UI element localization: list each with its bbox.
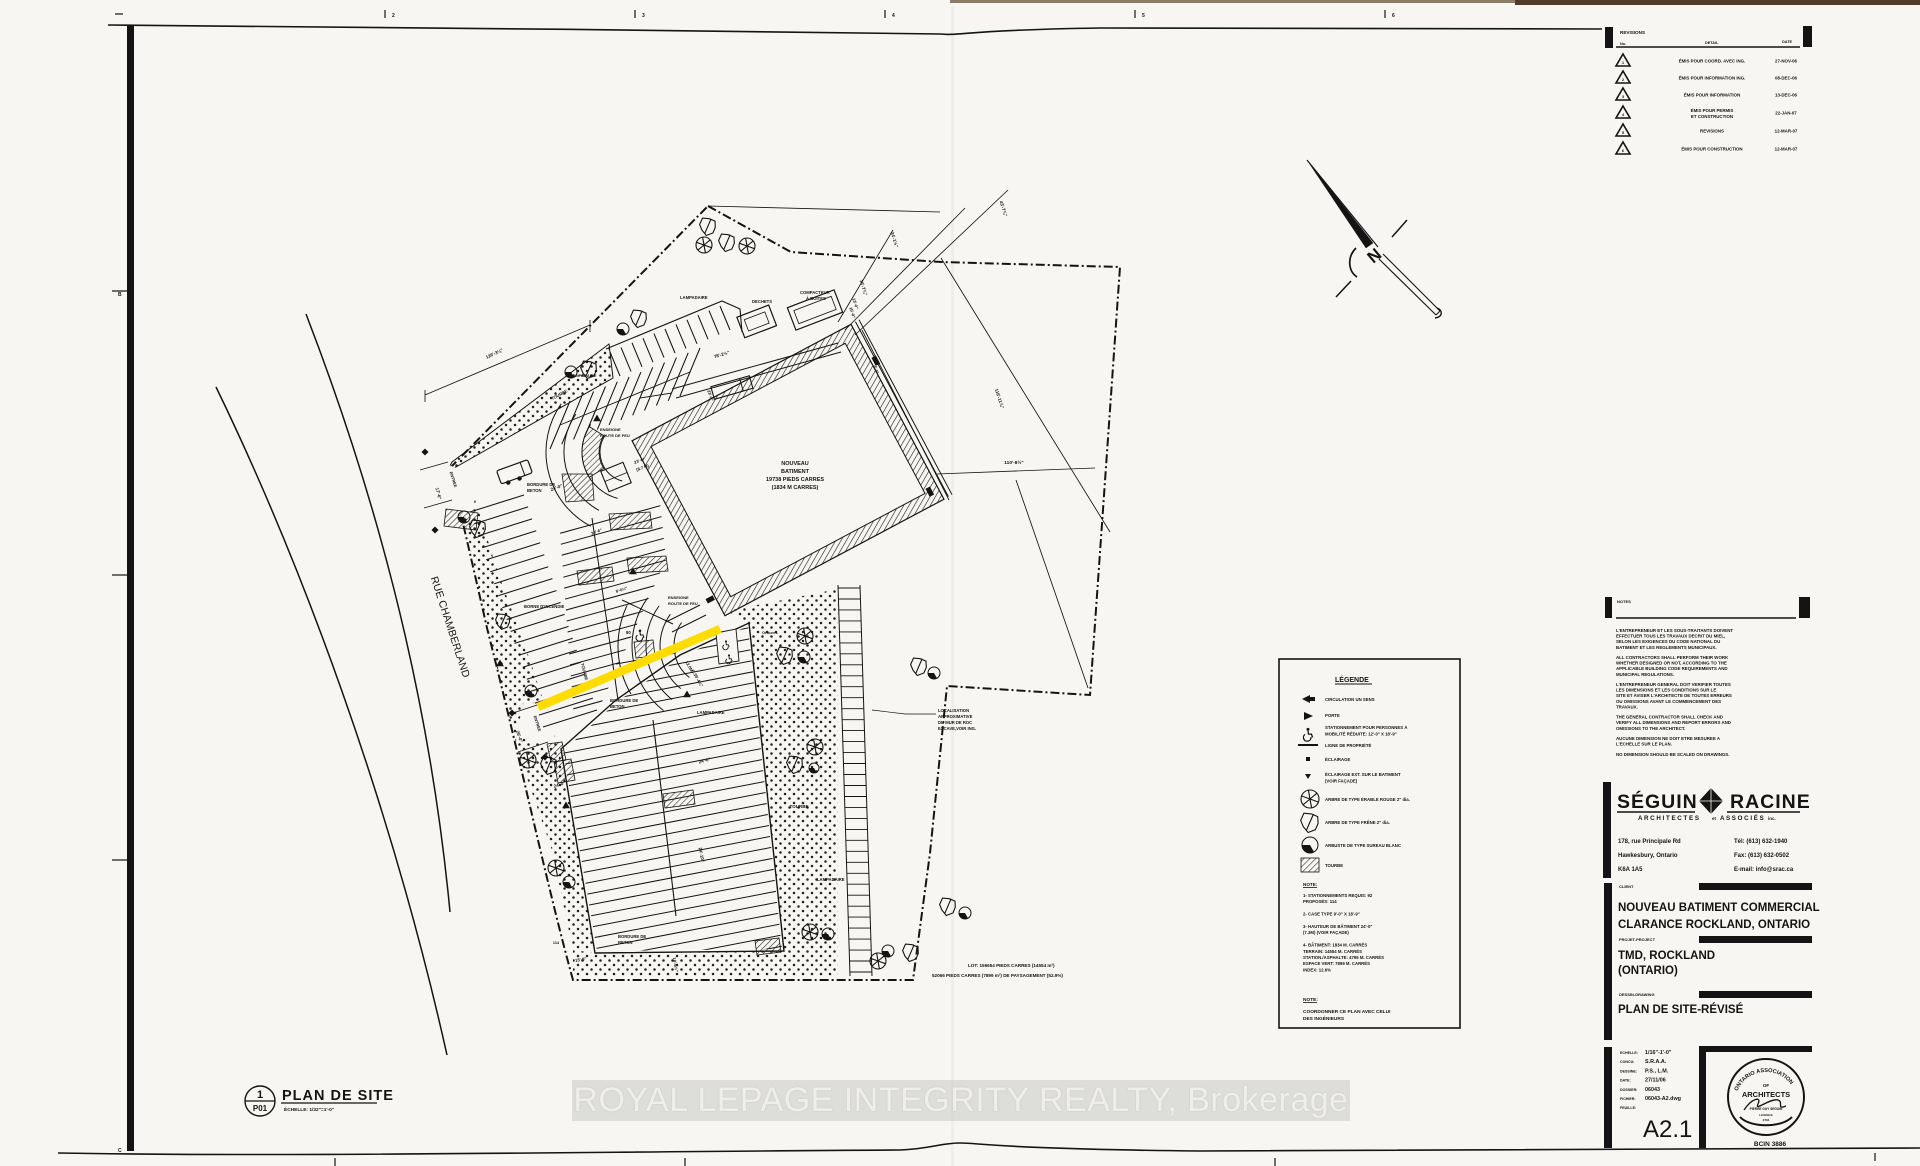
svg-text:L'ECHELLE SUR LE PLAN.: L'ECHELLE SUR LE PLAN.	[1616, 742, 1672, 747]
svg-text:DATE:: DATE:	[1620, 1079, 1631, 1083]
svg-text:1- STATIONNEMENTS REQUIS: 92: 1- STATIONNEMENTS REQUIS: 92	[1303, 893, 1373, 898]
svg-text:COORDONNER CE PLAN AVEC CELUI: COORDONNER CE PLAN AVEC CELUI	[1303, 1009, 1391, 1015]
svg-text:B: B	[118, 292, 122, 298]
svg-text:SITE ET AVISER L'ARCHITECTE DE: SITE ET AVISER L'ARCHITECTE DE TOUTES ER…	[1616, 693, 1732, 698]
svg-text:DETAIL: DETAIL	[1705, 41, 1719, 45]
svg-text:PORTE: PORTE	[1325, 713, 1340, 718]
svg-text:LICENCE: LICENCE	[1759, 1113, 1772, 1117]
svg-text:STATION./ASPHALTE: 4795 M. CA: STATION./ASPHALTE: 4795 M. CARRÉS	[1303, 955, 1384, 960]
svg-text:ROUTE DE FEU: ROUTE DE FEU	[668, 601, 698, 606]
svg-text:RACINE: RACINE	[1730, 791, 1811, 813]
svg-text:CLIENT: CLIENT	[1619, 884, 1634, 889]
svg-text:BCIN 3886: BCIN 3886	[1754, 1141, 1787, 1148]
svg-text:ALL CONTRACTORS SHALL PERFORM: ALL CONTRACTORS SHALL PERFORM THEIR WORK	[1616, 655, 1729, 660]
svg-text:MUNICIPAL REGULATIONS.: MUNICIPAL REGULATIONS.	[1616, 672, 1674, 677]
svg-text:DU MUR DE ROC: DU MUR DE ROC	[938, 720, 972, 725]
svg-text:FEUILLE:: FEUILLE:	[1620, 1106, 1636, 1110]
svg-text:1: 1	[257, 1089, 263, 1101]
svg-text:2- CASE TYPE 9'-0" X 18'-9": 2- CASE TYPE 9'-0" X 18'-9"	[1303, 912, 1360, 917]
svg-text:PROPOSÉS: 114: PROPOSÉS: 114	[1303, 899, 1337, 904]
svg-text:ÉMIS POUR PERMIS: ÉMIS POUR PERMIS	[1691, 108, 1734, 113]
svg-text:(1834 M CARRES): (1834 M CARRES)	[772, 485, 819, 491]
svg-text:110'-8½": 110'-8½"	[1004, 459, 1023, 466]
svg-text:VERIFY ALL DIMENSIONS AND REPO: VERIFY ALL DIMENSIONS AND REPORT ERRORS …	[1616, 720, 1731, 725]
svg-text:(ONTARIO): (ONTARIO)	[1618, 965, 1678, 977]
svg-text:ÉMIS POUR INFORMATION ING.: ÉMIS POUR INFORMATION ING.	[1679, 76, 1746, 81]
svg-text:ROUTE DE FEU: ROUTE DE FEU	[600, 433, 630, 438]
svg-text:LAMPADAIRE: LAMPADAIRE	[697, 710, 725, 715]
svg-text:BORDURE DE: BORDURE DE	[610, 698, 638, 703]
svg-text:BETON: BETON	[527, 488, 542, 493]
svg-text:À BOITES: À BOITES	[806, 296, 826, 301]
svg-text:LOT: 156654 PIEDS CARRES (1455: LOT: 156654 PIEDS CARRES (14554 m²)	[968, 963, 1055, 968]
svg-text:ET CONSTRUCTION: ET CONSTRUCTION	[1691, 114, 1733, 119]
svg-text:TOURBE: TOURBE	[790, 804, 809, 809]
svg-text:REVISIONS: REVISIONS	[1700, 129, 1724, 134]
svg-text:BATIMENT: BATIMENT	[781, 469, 810, 475]
svg-text:08-DEC-06: 08-DEC-06	[1775, 76, 1798, 81]
svg-text:80: 80	[626, 630, 631, 635]
svg-text:COMPACTEUR: COMPACTEUR	[800, 290, 830, 295]
svg-text:ÉCLAIRAGE EXT. SUR LE BATIMENT: ÉCLAIRAGE EXT. SUR LE BATIMENT	[1325, 772, 1401, 777]
svg-text:OMISSIONS TO THE ARCHITECT.: OMISSIONS TO THE ARCHITECT.	[1616, 726, 1685, 731]
svg-text:INDEX: 12.6%: INDEX: 12.6%	[1303, 967, 1331, 972]
svg-text:K6A 1A5: K6A 1A5	[1618, 867, 1643, 873]
svg-text:ARBUSTE DE TYPE SUREAU BLANC: ARBUSTE DE TYPE SUREAU BLANC	[1325, 843, 1401, 848]
svg-text:TMD, ROCKLAND: TMD, ROCKLAND	[1618, 950, 1715, 962]
svg-text:06043: 06043	[1645, 1087, 1660, 1093]
svg-text:P.S., L.M.: P.S., L.M.	[1645, 1068, 1669, 1074]
svg-text:DESSINE:: DESSINE:	[1620, 1069, 1637, 1073]
svg-text:MOBILITÉ RÉDUITE: 12'-0" X 18': MOBILITÉ RÉDUITE: 12'-0" X 18'-9"	[1325, 732, 1397, 737]
svg-text:CONCU:: CONCU:	[1620, 1060, 1634, 1064]
svg-text:12-MAR-07: 12-MAR-07	[1775, 147, 1798, 152]
svg-text:NOUVEAU: NOUVEAU	[781, 461, 809, 467]
svg-text:ARBRE DE TYPE ÉRABLE ROUGE 2": ARBRE DE TYPE ÉRABLE ROUGE 2" dia.	[1325, 797, 1410, 802]
svg-text:DOSSIER:: DOSSIER:	[1620, 1088, 1637, 1092]
svg-text:BETON: BETON	[610, 704, 625, 709]
svg-text:6: 6	[1392, 13, 1395, 19]
svg-text:TERRAIN: 14554 M: TERRAIN: 14554 M. CARRÉS	[1303, 949, 1362, 954]
svg-text:PIERRE GUY SEGUIN: PIERRE GUY SEGUIN	[1750, 1107, 1783, 1111]
svg-text:LAMPADAIRE: LAMPADAIRE	[680, 295, 708, 300]
svg-text:Fax: (613) 632-0502: Fax: (613) 632-0502	[1734, 853, 1790, 859]
svg-text:OF: OF	[1763, 1083, 1770, 1088]
svg-text:ENSEIGNE: ENSEIGNE	[668, 595, 689, 600]
svg-text:3- HAUTEUR DE BÂTIMENT 24'-0": 3- HAUTEUR DE BÂTIMENT 24'-0"	[1303, 924, 1372, 929]
svg-text:22-JAN-07: 22-JAN-07	[1775, 111, 1797, 116]
svg-text:DATE: DATE	[1782, 40, 1793, 44]
svg-text:P01: P01	[253, 1104, 268, 1113]
svg-text:ÉCLAIRAGE: ÉCLAIRAGE	[1325, 757, 1350, 762]
svg-text:PLAN DE SITE: PLAN DE SITE	[282, 1088, 394, 1104]
svg-text:EXCAVE,VOIR ING.: EXCAVE,VOIR ING.	[938, 726, 976, 731]
svg-text:DESSIN-DRAWING: DESSIN-DRAWING	[1619, 992, 1655, 997]
svg-text:AUCUNE DIMENSION NE DOIT ETRE: AUCUNE DIMENSION NE DOIT ETRE MESUREE A	[1616, 736, 1721, 741]
svg-text:ARCHITECTS: ARCHITECTS	[1742, 1090, 1790, 1099]
svg-text:(7.3M) (VOIR FAÇADE): (7.3M) (VOIR FAÇADE)	[1303, 930, 1349, 935]
svg-text:S.R.A.A.: S.R.A.A.	[1645, 1059, 1667, 1065]
svg-text:OU OMISSIONS AVANT LE COMMENCE: OU OMISSIONS AVANT LE COMMENCEMENT DES	[1616, 699, 1721, 704]
svg-text:19738 PIEDS CARRES: 19738 PIEDS CARRES	[766, 477, 824, 483]
svg-text:178, rue Principale Rd: 178, rue Principale Rd	[1618, 839, 1681, 845]
svg-text:LOCALISATION: LOCALISATION	[938, 708, 969, 713]
svg-text:114: 114	[553, 941, 560, 945]
svg-text:LAMPADAIRE: LAMPADAIRE	[817, 877, 845, 882]
svg-text:SÉGUIN: SÉGUIN	[1617, 790, 1698, 813]
svg-text:LIGNE DE PROPRIÉTÉ: LIGNE DE PROPRIÉTÉ	[1325, 743, 1371, 748]
svg-text:4: 4	[892, 13, 895, 19]
svg-text:13-DEC-06: 13-DEC-06	[1775, 93, 1798, 98]
svg-text:Tél: (613) 632-1940: Tél: (613) 632-1940	[1734, 839, 1788, 845]
svg-text:REVISIONS: REVISIONS	[1620, 30, 1645, 35]
svg-text:(VOIR FAÇADE): (VOIR FAÇADE)	[1325, 779, 1358, 784]
svg-text:THE GENERAL CONTRACTOR SHALL C: THE GENERAL CONTRACTOR SHALL CHECK AND	[1616, 715, 1723, 720]
svg-text:LÉGENDE: LÉGENDE	[1335, 675, 1369, 684]
svg-text:BORNE D'INCENDIE: BORNE D'INCENDIE	[524, 604, 565, 609]
svg-text:DECHETS: DECHETS	[752, 299, 772, 304]
svg-text:BETON: BETON	[618, 940, 633, 945]
svg-text:PLAN DE SITE-RÉVISÉ: PLAN DE SITE-RÉVISÉ	[1618, 1003, 1744, 1016]
svg-text:06043-A2.dwg: 06043-A2.dwg	[1645, 1096, 1681, 1102]
svg-text:BATIMENT ET LES REGLEMENTS MUN: BATIMENT ET LES REGLEMENTS MUNICIPAUX.	[1616, 645, 1717, 650]
svg-text:L'ENTREPRENEUR GENERAL DOIT VE: L'ENTREPRENEUR GENERAL DOIT VERIFIER TOU…	[1616, 682, 1731, 687]
svg-text:A R C H I T E C T E S: A R C H I T E C T E S	[1638, 815, 1699, 822]
svg-text:LES DIMENSIONS ET LES CONDITIO: LES DIMENSIONS ET LES CONDITIONS SUR LE	[1616, 688, 1716, 693]
svg-text:FICHIER:: FICHIER:	[1620, 1097, 1636, 1101]
svg-text:E-mail: info@srac.ca: E-mail: info@srac.ca	[1734, 867, 1794, 873]
svg-text:1/16"-1'-0": 1/16"-1'-0"	[1645, 1050, 1672, 1056]
svg-text:EFFECTUER TOUS LES TRAVAUX DEC: EFFECTUER TOUS LES TRAVAUX DECRIT DU MIE…	[1616, 634, 1725, 639]
svg-text:ÉMIS POUR COORD. AVEC ING.: ÉMIS POUR COORD. AVEC ING.	[1679, 59, 1746, 64]
svg-text:L'ENTREPRENEUR ET LES SOUS-TRA: L'ENTREPRENEUR ET LES SOUS-TRAITANTS DOI…	[1616, 628, 1733, 633]
svg-text:2794: 2794	[1763, 1118, 1770, 1122]
svg-text:NOTES: NOTES	[1617, 599, 1631, 604]
svg-text:27-NOV-06: 27-NOV-06	[1775, 59, 1798, 64]
svg-text:PROJET-PROJECT: PROJET-PROJECT	[1619, 937, 1656, 942]
svg-text:ÉMIS POUR INFORMATION: ÉMIS POUR INFORMATION	[1684, 93, 1741, 98]
svg-text:STATIONNEMENT POUR PERSONNES À: STATIONNEMENT POUR PERSONNES À	[1325, 725, 1407, 730]
svg-text:5: 5	[1142, 13, 1145, 19]
svg-text:4- BÂTIMENT: 18: 4- BÂTIMENT: 1834 M. CARRÉS	[1303, 943, 1367, 948]
svg-text:TRAVAUX.: TRAVAUX.	[1616, 704, 1638, 709]
svg-text:A S S O C I É S: A S S O C I É S	[1720, 814, 1764, 822]
svg-text:C: C	[118, 1148, 122, 1154]
svg-text:27/11/06: 27/11/06	[1645, 1078, 1666, 1084]
svg-text:ENSEIGNE: ENSEIGNE	[600, 427, 621, 432]
svg-text:APPROXIMATIVE: APPROXIMATIVE	[938, 714, 973, 719]
svg-text:SELON LES EXIGENCES DU CODE NA: SELON LES EXIGENCES DU CODE NATIONAL DU	[1616, 639, 1720, 644]
svg-text:ESPACE VERT: 7899 M. C: ESPACE VERT: 7899 M. CARRÉS	[1303, 961, 1370, 966]
svg-text:Hawkesbury, Ontario: Hawkesbury, Ontario	[1618, 853, 1678, 859]
svg-text:WHETHER DESIGNED OR NOT, ACCOR: WHETHER DESIGNED OR NOT, ACCORDING TO TH…	[1616, 661, 1727, 666]
svg-text:CLARANCE ROCKLAND, ONTARIO: CLARANCE ROCKLAND, ONTARIO	[1618, 919, 1810, 931]
svg-text:NO DIMENSION SHOULD BE SCALED: NO DIMENSION SHOULD BE SCALED ON DRAWING…	[1616, 752, 1729, 757]
svg-text:APPLICABLE BUILDING CODE REQUI: APPLICABLE BUILDING CODE REQUIREMENTS AN…	[1616, 666, 1728, 671]
svg-text:LAMPADAIRE: LAMPADAIRE	[570, 373, 597, 378]
svg-text:ARBRE DE TYPE FRÊNE 2" dia.: ARBRE DE TYPE FRÊNE 2" dia.	[1325, 820, 1390, 825]
svg-text:inc.: inc.	[1768, 816, 1776, 821]
svg-text:BORDURE DE: BORDURE DE	[618, 934, 646, 939]
svg-text:52066 PIEDS CARRES (7899 m²) D: 52066 PIEDS CARRES (7899 m²) DE PAYSAGEM…	[932, 973, 1063, 978]
svg-text:NOTE:: NOTE:	[1303, 882, 1318, 887]
svg-text:12-MAR-07: 12-MAR-07	[1775, 129, 1798, 134]
svg-text:No.: No.	[1620, 42, 1626, 46]
svg-text:ECHELLE:: ECHELLE:	[1620, 1051, 1638, 1055]
svg-text:TOURBE: TOURBE	[1325, 863, 1343, 868]
svg-text:Ordures: Ordures	[762, 630, 778, 635]
svg-text:3: 3	[642, 13, 645, 19]
svg-text:CIRCULATION UN SENS: CIRCULATION UN SENS	[1325, 697, 1375, 702]
svg-text:NOUVEAU BATIMENT COMMERCIAL: NOUVEAU BATIMENT COMMERCIAL	[1618, 902, 1820, 914]
svg-text:A2.1: A2.1	[1643, 1116, 1692, 1143]
svg-text:et: et	[1712, 816, 1717, 821]
svg-text:2: 2	[392, 13, 395, 19]
svg-text:ÉMIS POUR CONSTRUCTION: ÉMIS POUR CONSTRUCTION	[1681, 147, 1742, 152]
